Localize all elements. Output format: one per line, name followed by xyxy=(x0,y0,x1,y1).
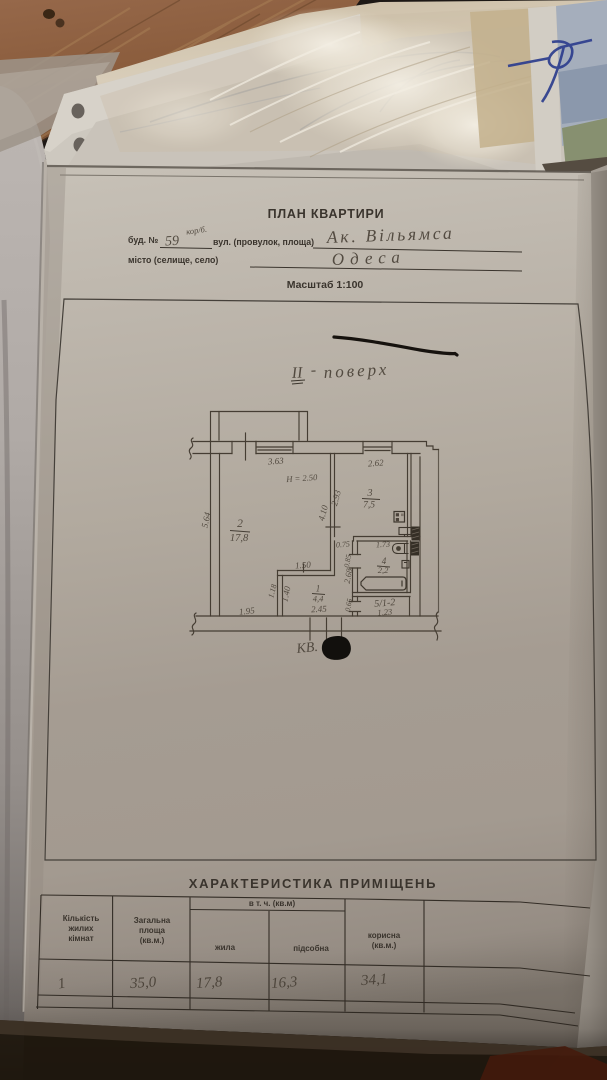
svg-text:місто (селище, село): місто (селище, село) xyxy=(128,255,218,265)
svg-text:7,5: 7,5 xyxy=(363,501,375,511)
svg-text:жилих: жилих xyxy=(67,924,94,933)
svg-text:Одеса: Одеса xyxy=(331,247,406,269)
svg-text:4,4: 4,4 xyxy=(313,594,324,604)
svg-text:площа: площа xyxy=(139,926,166,935)
svg-text:0.75: 0.75 xyxy=(336,540,351,550)
svg-text:1: 1 xyxy=(316,584,321,594)
svg-text:в т. ч. (кв.м): в т. ч. (кв.м) xyxy=(249,899,296,908)
svg-text:-: - xyxy=(310,362,316,379)
svg-text:2.62: 2.62 xyxy=(367,457,384,468)
svg-text:59: 59 xyxy=(165,234,180,250)
svg-text:1.95: 1.95 xyxy=(238,605,255,617)
svg-text:3: 3 xyxy=(367,488,373,499)
svg-text:поверх: поверх xyxy=(323,360,390,382)
svg-text:Загальна: Загальна xyxy=(134,916,171,925)
svg-text:КВ.: КВ. xyxy=(295,640,319,657)
svg-text:Кількість: Кількість xyxy=(63,914,100,923)
svg-text:Масштаб 1:100: Масштаб 1:100 xyxy=(287,279,364,291)
svg-text:17,8: 17,8 xyxy=(230,533,249,544)
svg-text:3.63: 3.63 xyxy=(267,455,285,466)
svg-text:кімнат: кімнат xyxy=(68,934,93,943)
svg-text:буд. №: буд. № xyxy=(128,235,158,245)
svg-text:2: 2 xyxy=(237,518,243,530)
svg-text:1,23: 1,23 xyxy=(377,606,393,617)
svg-text:1.50: 1.50 xyxy=(295,559,312,570)
svg-text:ХАРАКТЕРИСТИКА ПРИМІЩЕНЬ: ХАРАКТЕРИСТИКА ПРИМІЩЕНЬ xyxy=(189,876,437,891)
svg-text:2.45: 2.45 xyxy=(311,604,328,615)
svg-text:корисна: корисна xyxy=(368,931,401,940)
svg-text:ІІ: ІІ xyxy=(290,364,303,382)
svg-text:(кв.м.): (кв.м.) xyxy=(140,936,165,945)
svg-text:1.73: 1.73 xyxy=(376,540,390,550)
svg-text:вул. (провулок, площа): вул. (провулок, площа) xyxy=(213,237,314,247)
svg-text:ПЛАН КВАРТИРИ: ПЛАН КВАРТИРИ xyxy=(268,207,385,221)
